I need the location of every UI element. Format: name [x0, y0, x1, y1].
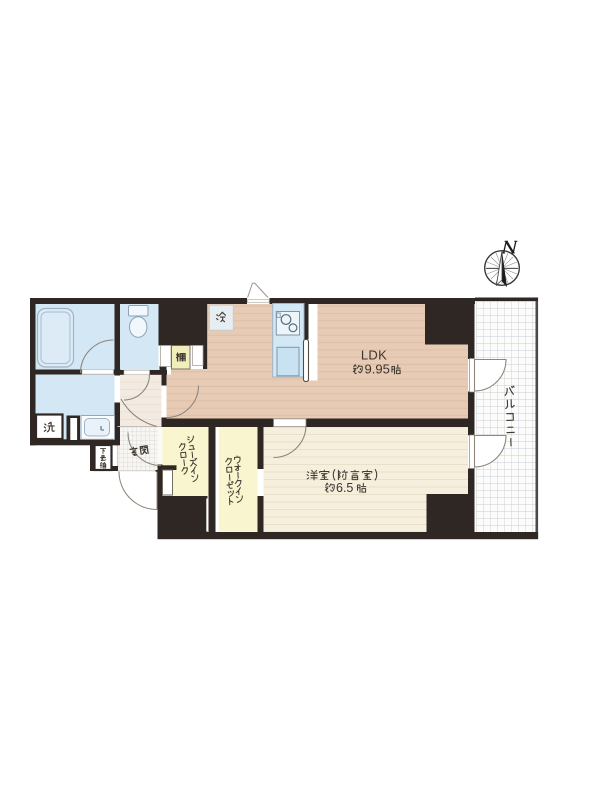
svg-text:9.95: 9.95: [365, 361, 390, 376]
svg-text:6.5: 6.5: [336, 481, 353, 495]
svg-text:LDK: LDK: [361, 348, 387, 363]
